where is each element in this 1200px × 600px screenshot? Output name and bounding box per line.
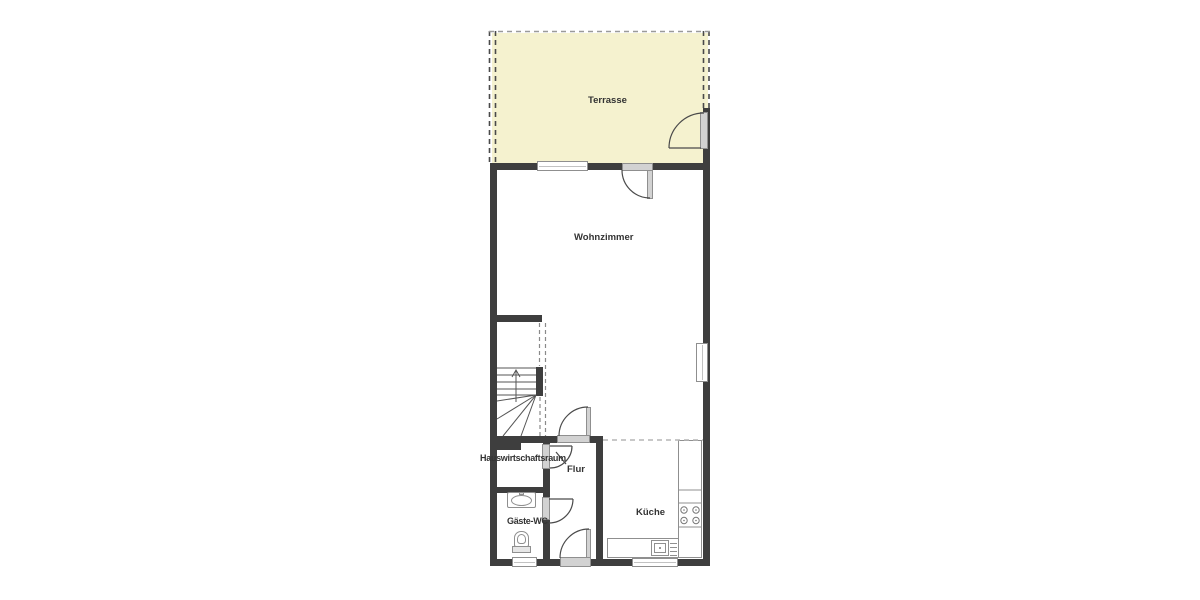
toilet-seat	[517, 534, 526, 544]
window-wc-bottom	[512, 557, 537, 567]
window-pane-line	[514, 562, 535, 563]
staircase	[497, 368, 536, 436]
room-label-wohnzimmer: Wohnzimmer	[574, 233, 633, 243]
window-pane-line	[702, 345, 703, 380]
wall-right	[703, 108, 710, 566]
toilet-cistern	[512, 546, 531, 553]
room-label-kueche: Küche	[636, 508, 665, 518]
stair-winder	[497, 395, 536, 401]
room-label-flur: Flur	[567, 465, 585, 475]
kitchen-sink-basin	[654, 543, 666, 553]
door-panel-hall	[586, 407, 591, 436]
window-kitchen-bottom	[632, 558, 678, 567]
room-label-terrasse: Terrasse	[588, 96, 627, 106]
window-pane-line	[634, 562, 676, 563]
floor-plan: Terrasse Wohnzimmer Hauswirtschaftsraum …	[0, 0, 1200, 600]
wall-living-top	[490, 163, 710, 170]
wall-left	[490, 163, 497, 566]
room-label-gaeste-wc: Gäste-WC	[507, 517, 548, 526]
wc-door-arc	[549, 499, 573, 523]
living-door-arc	[622, 170, 650, 198]
washbasin-bowl	[511, 495, 532, 506]
window-right	[696, 343, 708, 382]
stair-winder	[503, 395, 536, 436]
hall-door-arc	[559, 407, 588, 436]
wall-understair-stub	[497, 443, 521, 450]
door-panel-terrace	[700, 112, 708, 149]
door-panel-living	[647, 170, 653, 199]
window-living-top	[537, 161, 588, 171]
stair-winder	[521, 395, 536, 436]
stair-winder	[497, 395, 536, 419]
window-pane-line	[539, 166, 586, 167]
room-label-hauswirtschaftsraum: Hauswirtschaftsraum	[480, 454, 566, 463]
entry-door-threshold	[560, 557, 591, 567]
stair-rail-wall	[536, 367, 543, 396]
entry-door-arc	[560, 529, 589, 558]
kitchen-counter-right	[678, 440, 702, 558]
stair-up-arrow-icon	[512, 370, 520, 377]
wall-stair-stub	[497, 315, 542, 322]
washbasin-faucet	[519, 492, 524, 495]
door-opening-hall	[557, 435, 590, 443]
wall-hall-kitchen	[596, 443, 603, 559]
entry-door-panel	[586, 529, 591, 558]
